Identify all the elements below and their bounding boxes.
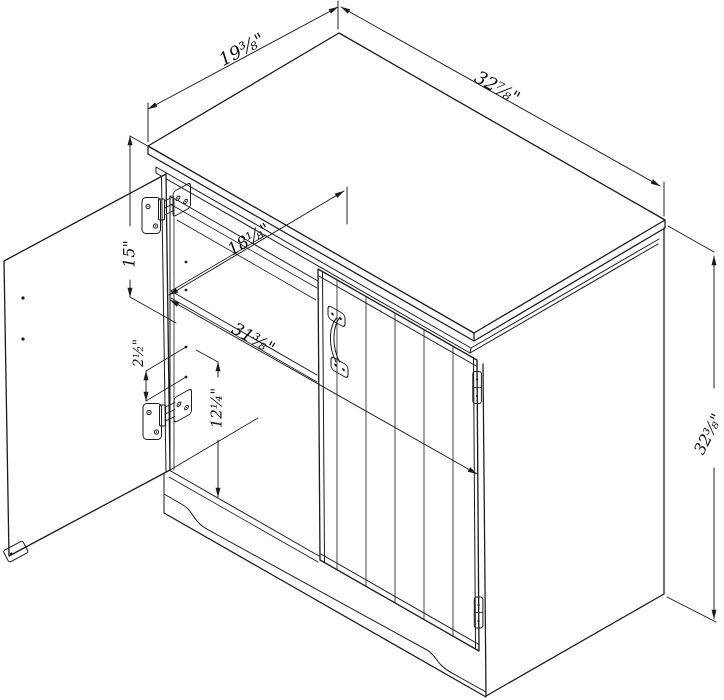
closed-right-door [318, 269, 483, 651]
dimension-interior-width-label: 31⅜" [228, 319, 278, 359]
shelf [171, 235, 317, 382]
dimension-lower-opening: 12¼" [196, 350, 226, 497]
dimension-height-label: 32⅜" [690, 410, 724, 457]
cabinet-floor [169, 418, 319, 562]
dimension-top-depth-label: 19⅜" [216, 29, 269, 71]
dimension-upper-opening-label: 15" [120, 240, 139, 268]
drawing-canvas: 19⅜" 32⅞" 32⅜" 15" 2½" 12¼" 18⅛" 31⅜" [0, 0, 724, 700]
dimension-lower-opening-label: 12¼" [208, 388, 226, 429]
cabinet-dimension-drawing: 19⅜" 32⅞" 32⅜" 15" 2½" 12¼" 18⅛" 31⅜" [0, 0, 724, 700]
shelf-pin-holes [185, 261, 188, 379]
dimension-shelf-hole-spacing-label: 2½" [131, 339, 147, 368]
front-right-corner-edge [483, 364, 486, 696]
handle-hole [21, 337, 24, 340]
cabinet-top [148, 33, 665, 341]
open-left-door [3, 174, 170, 562]
dimension-top-width-label: 32⅞" [471, 67, 524, 109]
handle-hole [21, 296, 24, 299]
dimension-height: 32⅜" [667, 226, 724, 622]
